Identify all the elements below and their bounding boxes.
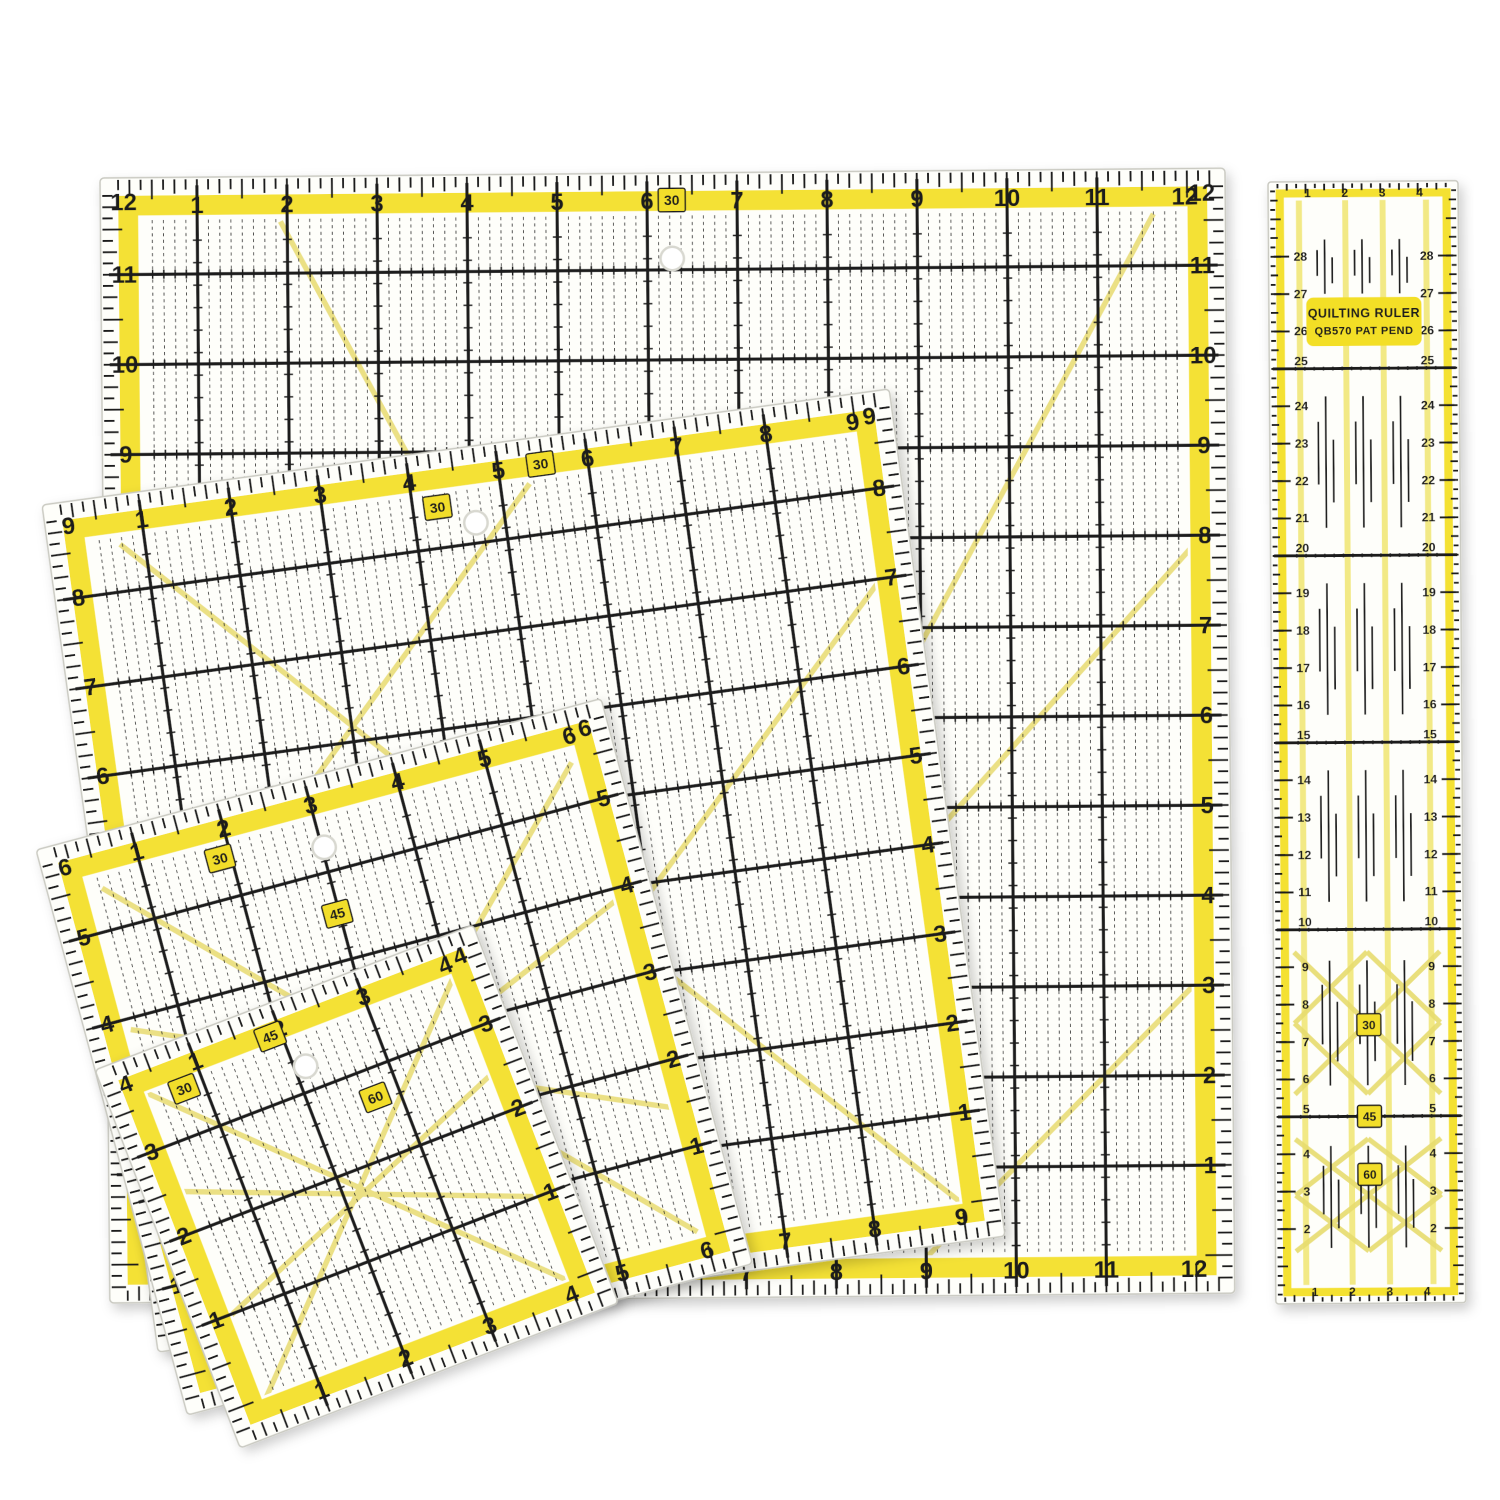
scale-number: 10 <box>994 185 1021 212</box>
scale-number: 16 <box>1423 698 1437 712</box>
angle-badge-label: 30 <box>664 192 680 208</box>
scale-number: 1 <box>1312 1285 1319 1299</box>
scale-number: 4 <box>1201 882 1215 909</box>
scale-number: 25 <box>1421 353 1435 367</box>
scale-number: 7 <box>1199 612 1213 639</box>
product-image: 1122334455667788991010111112121212111110… <box>0 0 1500 1500</box>
scale-number: 12 <box>1181 1256 1208 1283</box>
scale-number: 3 <box>1379 185 1386 199</box>
scale-number: 23 <box>1295 437 1309 451</box>
scale-number: 14 <box>1423 772 1437 786</box>
scale-number: 20 <box>1295 541 1309 555</box>
scale-number: 16 <box>1297 698 1311 712</box>
brand-plate <box>1306 297 1422 346</box>
scale-number: 1 <box>190 192 204 219</box>
scale-number: 3 <box>1303 1185 1310 1199</box>
scale-number: 2 <box>1203 1062 1217 1089</box>
scale-number: 9 <box>1428 959 1435 973</box>
scale-number: 1 <box>1304 186 1311 200</box>
scale-number: 13 <box>1424 810 1438 824</box>
scale-number: 2 <box>1430 1221 1437 1235</box>
scale-number: 21 <box>1295 511 1309 525</box>
scale-number: 9 <box>1302 960 1309 974</box>
scale-number: 5 <box>550 189 564 216</box>
scale-number: 10 <box>1424 914 1438 928</box>
angle-badge-label: 45 <box>1363 1110 1377 1124</box>
scale-number: 10 <box>1298 915 1312 929</box>
scale-number: 9 <box>119 442 133 469</box>
scale-number: 8 <box>1198 522 1212 549</box>
scale-number: 4 <box>1416 185 1423 199</box>
brand-title: QUILTING RULER <box>1308 306 1420 321</box>
scale-number: 6 <box>1200 702 1214 729</box>
scale-number: 11 <box>1298 885 1311 899</box>
scale-number: 10 <box>1190 342 1217 369</box>
scale-number: 26 <box>1420 324 1434 338</box>
scale-number: 12 <box>1188 180 1215 207</box>
scale-number: 11 <box>1084 184 1110 211</box>
scale-number: 13 <box>1297 811 1311 825</box>
scale-number: 20 <box>1422 540 1436 554</box>
scale-number: 27 <box>1294 287 1308 301</box>
scale-number: 8 <box>830 1259 844 1286</box>
scale-number: 10 <box>1003 1257 1030 1284</box>
scale-number: 9 <box>910 186 924 213</box>
scale-number: 3 <box>1386 1285 1393 1299</box>
scale-number: 28 <box>1293 250 1307 264</box>
hanging-hole <box>660 247 684 271</box>
scale-number: 11 <box>1190 252 1216 279</box>
quilting-rulers-product-photo: 1122334455667788991010111112121212111110… <box>0 0 1500 1500</box>
scale-number: 6 <box>1429 1072 1436 1086</box>
scale-number: 12 <box>1424 847 1438 861</box>
scale-number: 27 <box>1420 286 1434 300</box>
scale-number: 4 <box>1430 1146 1437 1160</box>
scale-number: 22 <box>1295 474 1309 488</box>
scale-number: 18 <box>1296 624 1310 638</box>
scale-number: 12 <box>1298 848 1312 862</box>
scale-number: 2 <box>1349 1285 1356 1299</box>
scale-number: 17 <box>1296 661 1310 675</box>
scale-number: 25 <box>1294 354 1308 368</box>
scale-number: 8 <box>820 187 834 214</box>
scale-number: 5 <box>1303 1102 1310 1116</box>
scale-number: 11 <box>1094 1257 1120 1284</box>
scale-number: 24 <box>1421 398 1435 412</box>
scale-number: 7 <box>1302 1035 1309 1049</box>
scale-number: 5 <box>1200 792 1214 819</box>
angle-badge-label: 30 <box>532 455 550 473</box>
angle-badge-label: 60 <box>1363 1168 1377 1182</box>
scale-number: 7 <box>730 187 744 214</box>
scale-number: 3 <box>1202 972 1216 999</box>
scale-number: 2 <box>1341 186 1348 200</box>
scale-number: 17 <box>1423 660 1437 674</box>
ruler-30cm-strip: 2828272726262525242423232222212120201919… <box>1268 181 1466 1304</box>
scale-number: 24 <box>1294 399 1308 413</box>
scale-number: 26 <box>1294 324 1308 338</box>
scale-number: 11 <box>1425 885 1438 899</box>
scale-number: 11 <box>111 262 137 289</box>
scale-number: 12 <box>110 189 137 216</box>
scale-number: 15 <box>1423 727 1437 741</box>
scale-number: 15 <box>1297 728 1311 742</box>
scale-number: 14 <box>1297 773 1311 787</box>
brand-model-number: QB570 PAT PEND <box>1315 325 1414 338</box>
scale-number: 6 <box>1303 1072 1310 1086</box>
scale-number: 2 <box>280 191 294 218</box>
scale-number: 23 <box>1421 436 1435 450</box>
scale-number: 22 <box>1421 473 1435 487</box>
scale-number: 7 <box>1429 1034 1436 1048</box>
scale-number: 19 <box>1296 586 1310 600</box>
scale-number: 4 <box>460 190 474 217</box>
scale-number: 3 <box>370 191 384 218</box>
scale-number: 8 <box>1428 997 1435 1011</box>
angle-badge-label: 30 <box>1362 1018 1376 1032</box>
scale-number: 21 <box>1422 511 1436 525</box>
scale-number: 6 <box>640 188 654 215</box>
scale-number: 4 <box>1303 1147 1310 1161</box>
scale-number: 10 <box>112 352 139 379</box>
scale-number: 8 <box>1302 998 1309 1012</box>
scale-number: 1 <box>1203 1152 1217 1179</box>
scale-number: 5 <box>1429 1101 1436 1115</box>
scale-number: 18 <box>1422 623 1436 637</box>
scale-number: 9 <box>1197 432 1211 459</box>
scale-number: 19 <box>1422 585 1436 599</box>
angle-badge-label: 30 <box>429 498 447 516</box>
scale-number: 2 <box>1304 1222 1311 1236</box>
scale-number: 3 <box>1430 1184 1437 1198</box>
scale-number: 4 <box>1424 1284 1431 1298</box>
scale-number: 9 <box>920 1258 934 1285</box>
scale-number: 28 <box>1420 249 1434 263</box>
